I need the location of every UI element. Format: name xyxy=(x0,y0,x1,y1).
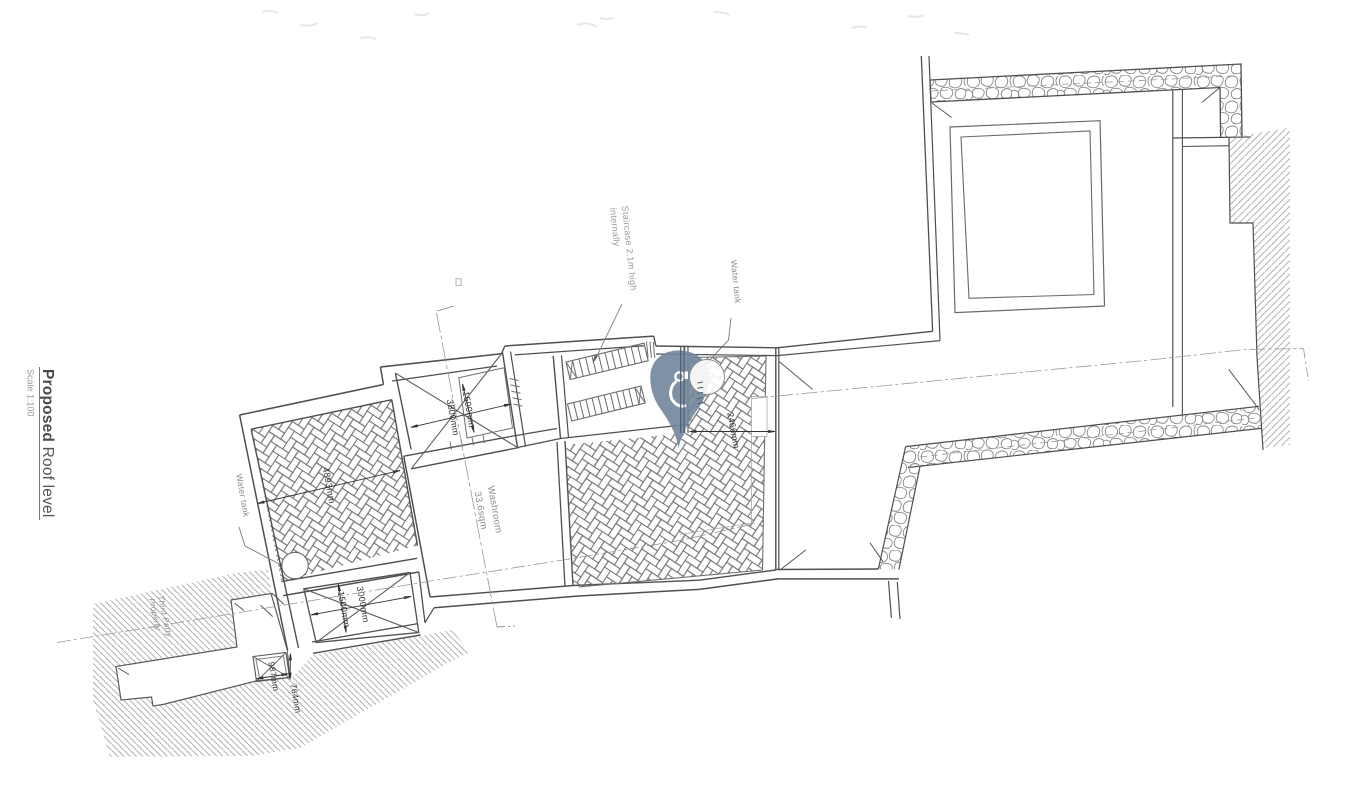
svg-text:Proposed Roof level: Proposed Roof level xyxy=(39,369,56,518)
svg-text:Scale 1:100: Scale 1:100 xyxy=(26,369,36,417)
